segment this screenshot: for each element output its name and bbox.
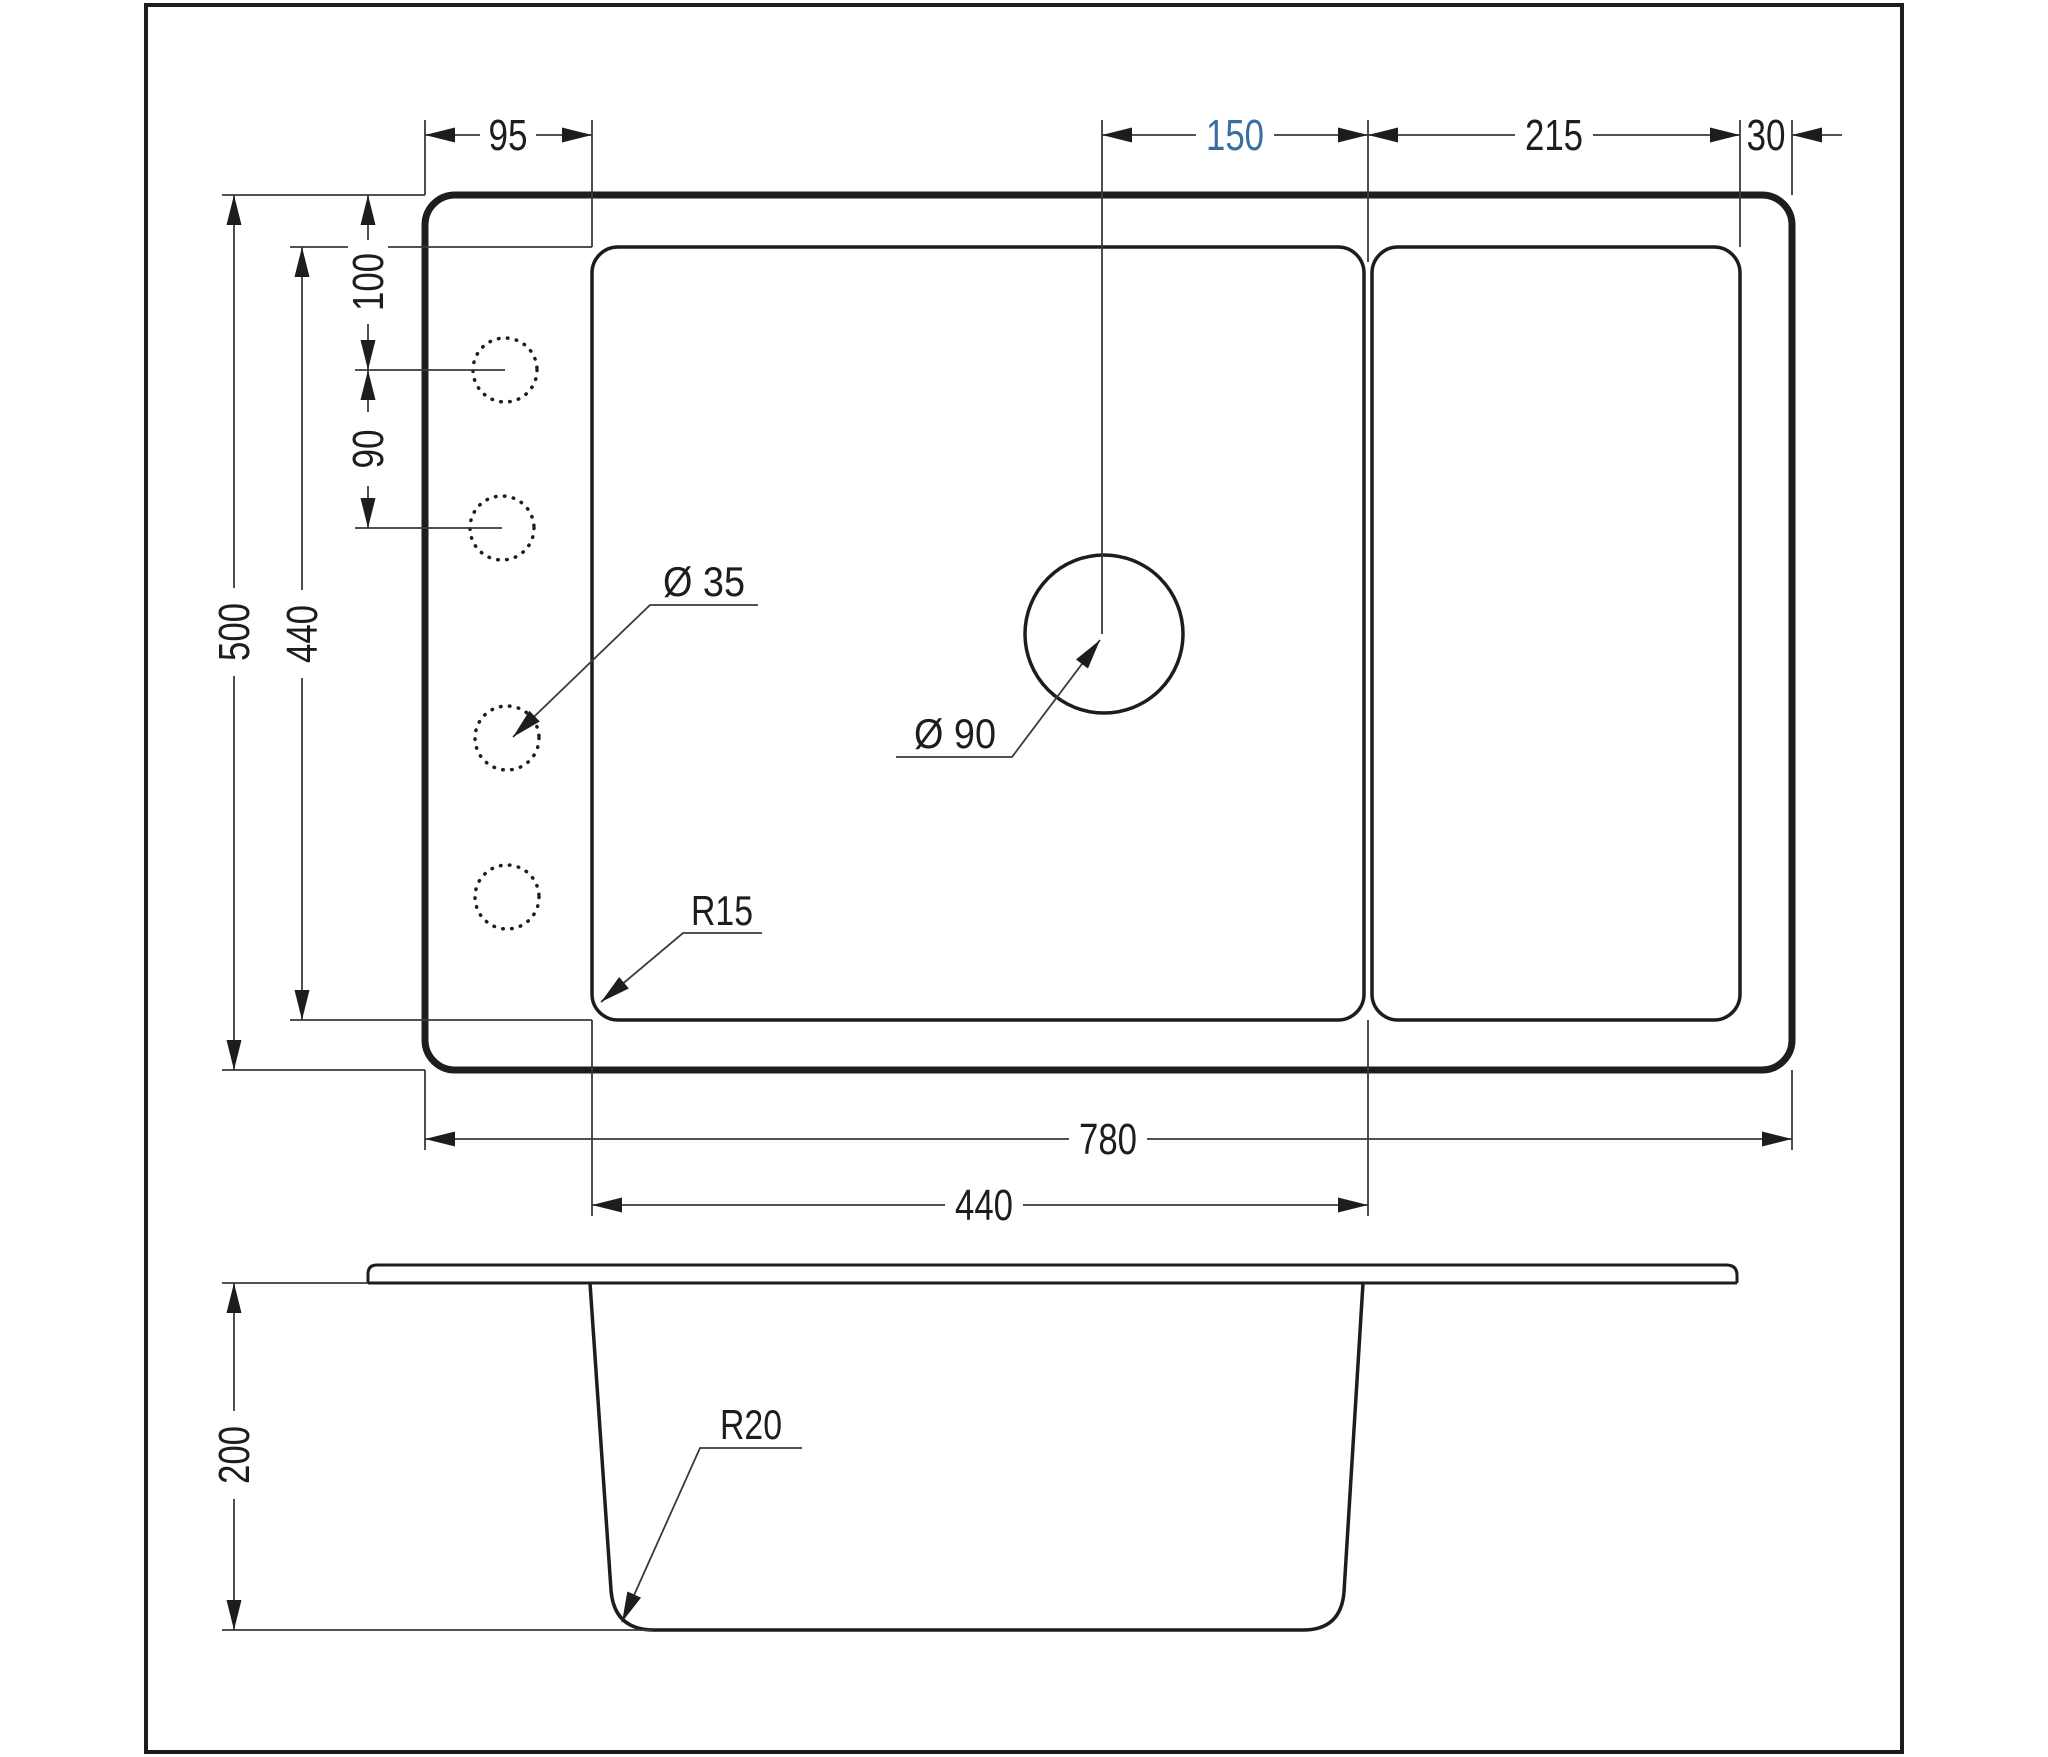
dim-440-depth: 440 [278, 605, 327, 663]
dim-200: 200 [210, 1426, 259, 1484]
arrowhead [227, 1600, 242, 1630]
arrowhead [615, 1592, 641, 1626]
arrowhead [295, 990, 310, 1020]
arrowhead [1338, 1198, 1368, 1213]
arrowhead [592, 1198, 622, 1213]
arrowhead [361, 340, 376, 370]
arrowhead [1762, 1132, 1792, 1147]
arrowhead [425, 128, 455, 143]
dim-100: 100 [344, 253, 393, 311]
dim-95: 95 [489, 111, 528, 160]
page-border [146, 5, 1902, 1752]
drain-hole [1025, 555, 1183, 713]
dim-30: 30 [1747, 111, 1786, 160]
arrowhead [361, 195, 376, 225]
arrowhead [361, 370, 376, 400]
arrowhead [227, 1040, 242, 1070]
arrowhead [227, 1283, 242, 1313]
arrowhead [425, 1132, 455, 1147]
arrowhead [1076, 635, 1106, 668]
r20-leader [622, 1448, 802, 1622]
arrowhead [562, 128, 592, 143]
label-r20: R20 [720, 1401, 782, 1448]
arrowhead [1792, 128, 1822, 143]
r15-leader [601, 933, 762, 1002]
label-r15: R15 [691, 887, 753, 934]
dimension-lines [222, 120, 1842, 1622]
dim-440-width: 440 [955, 1181, 1013, 1230]
sink-outer-outline [425, 195, 1792, 1070]
arrowhead [361, 498, 376, 528]
arrowhead [1368, 128, 1398, 143]
dimension-labels: 95 150 215 30 780 440 100 90 500 440 200… [210, 111, 1791, 1499]
faucet-diameter-leader [513, 605, 758, 737]
dim-150: 150 [1206, 111, 1264, 160]
faucet-hole-4 [475, 865, 539, 929]
arrowhead [1102, 128, 1132, 143]
drawing-canvas: 95 150 215 30 780 440 100 90 500 440 200… [0, 0, 2048, 1757]
bowl-section-profile [590, 1283, 1363, 1630]
arrowhead [295, 247, 310, 277]
dim-780: 780 [1079, 1115, 1137, 1164]
dimension-arrows [227, 128, 1823, 1631]
dim-500: 500 [210, 603, 259, 661]
arrowhead [227, 195, 242, 225]
arrowhead [1338, 128, 1368, 143]
label-drain-diameter: Ø 90 [914, 710, 996, 757]
sink-technical-drawing: 95 150 215 30 780 440 100 90 500 440 200… [0, 0, 2048, 1757]
dim-90: 90 [344, 430, 393, 469]
rim-top-profile [368, 1265, 1737, 1283]
drainboard-outline [1372, 247, 1740, 1020]
section-view [222, 1265, 1737, 1630]
label-faucet-diameter: Ø 35 [663, 558, 745, 605]
top-view [425, 195, 1792, 1070]
arrowhead [1710, 128, 1740, 143]
dim-215: 215 [1525, 111, 1583, 160]
